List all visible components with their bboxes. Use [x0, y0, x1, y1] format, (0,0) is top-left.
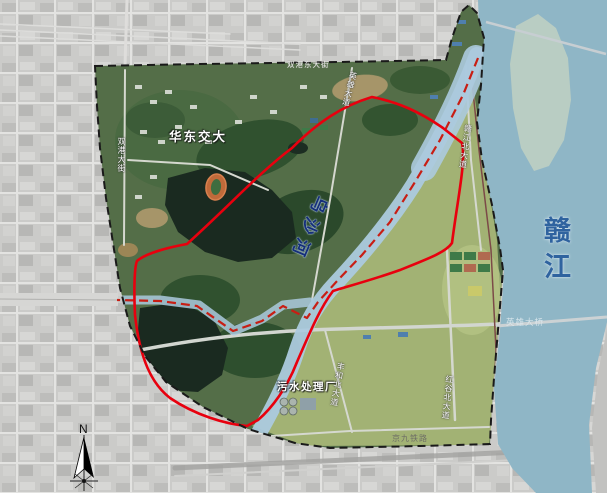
- map-canvas: N: [0, 0, 607, 493]
- compass-n-label: N: [79, 422, 88, 436]
- satellite-planning-map: N 华东交大 污水处理厂 赣江 乌沙河 英雄大桥 京九铁路 双港东大街 双港大街…: [0, 0, 607, 493]
